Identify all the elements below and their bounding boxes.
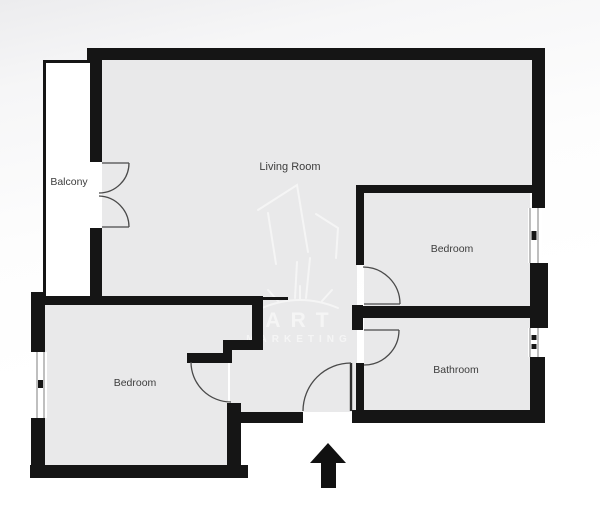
wall-step-bar xyxy=(187,353,231,363)
wall-half-partition xyxy=(250,297,288,300)
entrance-opening xyxy=(303,412,352,423)
floorplan-canvas: ART MARKETING xyxy=(0,0,600,526)
room-floors xyxy=(45,60,532,465)
balcony-door-opening xyxy=(90,162,102,228)
room-label-bedroom-right: Bedroom xyxy=(431,243,474,255)
wall-living-left-lower xyxy=(90,228,102,297)
living-room-floor-left xyxy=(102,60,357,297)
entrance-arrow-icon xyxy=(310,443,346,488)
wall-right-upper xyxy=(532,48,545,208)
wall-step-horizontal xyxy=(223,340,263,350)
room-label-bedroom-left: Bedroom xyxy=(114,377,157,389)
wall-bedroom-left-bottom xyxy=(30,465,248,478)
window-tick xyxy=(532,344,537,349)
window-tick xyxy=(532,231,537,240)
window-tick xyxy=(38,380,43,388)
wall-bedroom-right-top xyxy=(356,185,545,193)
wall-bedroom-bathroom-divider xyxy=(356,306,534,318)
watermark-text-art: ART xyxy=(265,309,338,332)
wall-balcony-left-thin xyxy=(43,60,46,297)
floorplan-drawing: ART MARKETING xyxy=(0,0,600,526)
wall-hall-lower xyxy=(356,363,364,413)
wall-right-middle xyxy=(530,263,548,328)
wall-hall-upper xyxy=(356,185,364,265)
window-tick xyxy=(532,335,537,340)
wall-top xyxy=(87,48,545,60)
room-label-bathroom: Bathroom xyxy=(433,364,479,376)
wall-bathroom-bottom xyxy=(352,410,545,423)
wall-bedroom-left-east xyxy=(227,403,241,478)
wall-balcony-top-thin xyxy=(43,60,90,63)
wall-bedroom-left-west-upper xyxy=(31,292,45,354)
wall-living-left-upper xyxy=(90,48,102,162)
room-label-balcony: Balcony xyxy=(50,176,88,188)
room-label-living-room: Living Room xyxy=(259,161,320,173)
wall-bedroom-left-top xyxy=(32,296,258,305)
